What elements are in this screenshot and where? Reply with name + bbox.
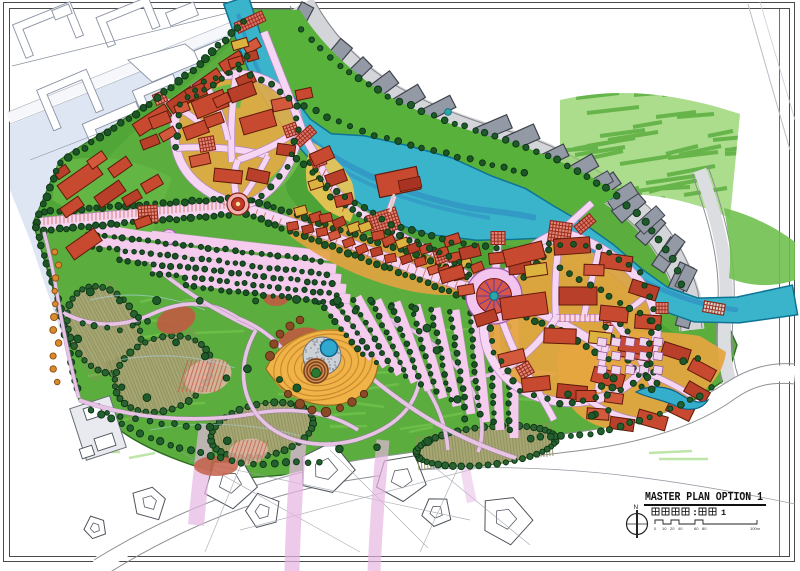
svg-text:0: 0: [654, 526, 657, 531]
svg-text:1: 1: [721, 508, 726, 518]
svg-text:60: 60: [694, 526, 699, 531]
svg-text:100m: 100m: [750, 526, 761, 531]
svg-text:10: 10: [662, 526, 667, 531]
svg-text:40: 40: [678, 526, 683, 531]
svg-text:MASTER PLAN OPTION 1: MASTER PLAN OPTION 1: [645, 491, 763, 504]
svg-text:N: N: [634, 504, 639, 511]
svg-text:80: 80: [702, 526, 707, 531]
svg-text:20: 20: [670, 526, 675, 531]
